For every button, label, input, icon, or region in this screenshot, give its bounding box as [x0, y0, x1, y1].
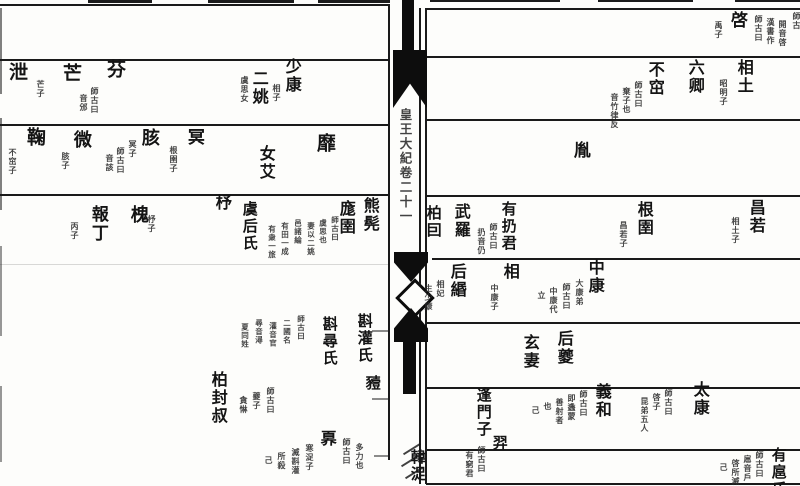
label-mang: 芒 — [60, 63, 80, 84]
label-zhu: 杼 — [213, 194, 230, 212]
right-page-top-border — [426, 8, 800, 10]
label-zhenguan: 斟灌氏 — [356, 313, 372, 364]
note-fen: 師古曰 — [90, 87, 98, 114]
note-ao: 己 — [264, 456, 272, 465]
note-genyu: 昌若子 — [619, 221, 627, 248]
note-buzhu: 師古曰 — [634, 81, 642, 108]
label-yi-zhuo-son: 豷 — [364, 375, 380, 392]
label-hai: 胲 — [139, 128, 158, 148]
note-zhongkang: 立 — [537, 291, 545, 300]
label-houmin: 后緡 — [448, 263, 465, 299]
note-ming: 根圉子 — [169, 146, 177, 173]
label-shaokang: 少康 — [283, 58, 300, 94]
note-houmin: 生少康 — [424, 284, 432, 311]
note-hai: 師古曰 — [116, 147, 124, 174]
scanned-book-spread: 皇王大紀卷二十一 泄 芒子 芒 芬 師古曰 音邠 二姚 虞思女 少康 相子 鞠 … — [0, 0, 800, 486]
label-zhongkang: 中康 — [586, 259, 603, 295]
note-ju: 不窋子 — [8, 148, 16, 175]
label-wei: 微 — [71, 130, 90, 150]
label-nuai: 女艾 — [257, 145, 274, 181]
note-yuhoushi: 虞思也 — [319, 219, 327, 245]
note-bofengshu: 夔子 — [252, 392, 260, 410]
left-page-left-border — [0, 118, 2, 210]
right-page-row-divider — [426, 195, 800, 197]
note-eryao: 虞思女 — [240, 76, 248, 103]
note-ao: 師古曰 — [342, 438, 350, 465]
label-fen: 芬 — [104, 59, 124, 80]
label-xihe: 義和 — [593, 383, 610, 419]
note-buzhu: 音竹律反 — [610, 93, 618, 129]
note-pangmenzi: 也 — [543, 402, 551, 411]
note-yuhoushi: 邑諸綸 — [294, 219, 302, 245]
note-zhongkang: 師古曰 — [562, 283, 570, 310]
note-yourengjun: 扔音仍 — [477, 228, 485, 255]
label-xiongkun: 熊髡 — [361, 197, 378, 233]
note-hai: 音該 — [105, 154, 113, 172]
label-boyin: 柏囙 — [425, 205, 441, 239]
label-ming: 冥 — [184, 128, 202, 147]
note-yuhoushi: 妻以二姚 — [307, 222, 315, 256]
label-ao: 奡 — [318, 430, 335, 448]
label-youhushi: 有扈氏 — [770, 447, 786, 486]
note-yuhoushi: 有田一成 — [281, 222, 289, 256]
left-page-right-border — [388, 4, 390, 460]
right-page-row-divider — [426, 56, 800, 58]
label-xie: 泄 — [6, 62, 26, 83]
label-genyu: 根圉 — [635, 201, 652, 237]
note-xie: 芒子 — [36, 80, 44, 98]
note-yourengjun: 師古曰 — [489, 223, 497, 250]
note-zhen: 師古曰 — [297, 315, 305, 341]
left-page-row-divider — [0, 194, 390, 196]
note-wei: 胲子 — [61, 152, 69, 170]
note-buzhu: 棄子也 — [622, 87, 630, 114]
note-ao: 所殺 — [277, 452, 285, 470]
left-page-faded-divider — [0, 264, 390, 265]
label-pangmenzi: 逢門子 — [475, 387, 491, 438]
label-changruo: 昌若 — [747, 199, 764, 235]
label-liuqing: 六卿 — [686, 59, 703, 95]
fold-volume-title: 皇王大紀卷二十一 — [398, 108, 411, 224]
left-page-row-divider — [0, 124, 390, 126]
label-qi: 啓 — [727, 11, 745, 30]
note-changruo: 相土子 — [731, 217, 739, 244]
label-taikang: 太康 — [691, 381, 708, 417]
note-youhushi: 啓所滅 — [731, 459, 739, 486]
note-huai: 杼子 — [147, 215, 155, 233]
note-baoding: 丙子 — [70, 222, 78, 240]
label-yourengjun: 有扔君 — [500, 201, 516, 252]
left-page-row-divider — [0, 59, 390, 61]
note-youhushi: 扈音戶 — [743, 455, 751, 482]
note-yi-archer: 師古曰 — [477, 446, 485, 473]
note-qi: 師古曰 — [754, 15, 762, 42]
fold-top-black-bar — [402, 0, 414, 52]
scan-edge-mark — [735, 0, 800, 2]
label-buzhu: 不窋 — [646, 61, 663, 97]
label-bofengshu: 柏封叔 — [209, 371, 226, 425]
label-ju: 鞠 — [24, 127, 44, 148]
right-page-row-divider — [426, 322, 800, 324]
label-yin: 胤 — [570, 141, 588, 160]
label-xiangtu: 相土 — [735, 59, 752, 95]
label-zhenxun: 斟尋氏 — [321, 316, 337, 367]
scan-edge-mark — [88, 0, 152, 3]
left-page-left-border — [0, 8, 2, 94]
note-pangmenzi: 師古曰 — [579, 390, 587, 417]
right-page-row-divider — [432, 258, 800, 260]
note-taikang: 啓子 — [652, 393, 660, 411]
note-qi: 禹子 — [714, 21, 722, 39]
scan-edge-mark — [318, 0, 390, 3]
left-page-left-border — [0, 246, 2, 336]
note-zhen: 二國名 — [283, 319, 291, 345]
note-xiangtu: 昭明子 — [719, 79, 727, 106]
note-houmin: 相妃 — [436, 280, 444, 298]
left-page-top-border — [0, 4, 390, 6]
note-ao: 滅斟灌 — [291, 448, 299, 475]
note-taikang: 師古曰 — [664, 389, 672, 416]
note-ao: 多力也 — [355, 443, 363, 470]
fold-fishtail-icon — [393, 50, 427, 108]
label-xuanqi: 玄妻 — [521, 334, 538, 370]
note-qi: 開音啓 — [778, 20, 786, 47]
note-yuhoushi: 有衆一旅 — [268, 225, 276, 259]
note-zhongkang: 中康代 — [549, 287, 557, 314]
note-qi: 漢書作 — [766, 18, 774, 45]
note-taikang: 昆弟五人 — [640, 397, 648, 433]
label-wuluo: 武羅 — [452, 203, 469, 239]
note-pangmenzi: 己 — [531, 406, 539, 415]
note-shaokang: 相子 — [272, 84, 280, 102]
note-hai: 冥子 — [128, 140, 136, 158]
scan-edge-mark — [598, 0, 693, 2]
note-pangmenzi: 善射者 — [555, 398, 563, 425]
label-yuhoushi: 虞后氏 — [241, 201, 257, 252]
note-zhen: 灌音官 — [269, 322, 277, 348]
note-bofengshu: 貪惏 — [239, 396, 247, 414]
note-zhen: 夏同姓 — [241, 323, 249, 349]
note-edge-clipped: 師古 — [792, 12, 800, 30]
fold-fishtail-icon — [394, 308, 428, 342]
fold-fishtail-icon — [394, 252, 428, 282]
note-youhushi: 己 — [719, 463, 727, 472]
right-page-bottom-border — [426, 483, 800, 485]
left-page-left-border — [0, 386, 2, 462]
label-xiang: 相 — [501, 263, 518, 281]
note-yi-archer: 有窮君 — [465, 451, 473, 478]
note-pangmenzi: 即蠭蒙 — [567, 394, 575, 421]
note-youhushi: 師古曰 — [755, 451, 763, 478]
label-yi-archer: 羿 — [491, 435, 507, 452]
note-fen: 音邠 — [79, 94, 87, 112]
scan-edge-mark — [208, 0, 294, 3]
note-ao: 寒浞子 — [305, 444, 313, 471]
note-xiang: 中康子 — [490, 284, 498, 311]
label-huai: 槐 — [128, 205, 147, 225]
note-zhen: 尋音潯 — [255, 319, 263, 345]
label-mangyu: 庬圉 — [337, 200, 354, 236]
note-bofengshu: 師古曰 — [266, 387, 274, 414]
scan-edge-mark — [430, 0, 560, 2]
note-zhongkang: 大康弟 — [575, 279, 583, 306]
label-eryao: 二姚 — [250, 70, 267, 106]
label-baoding: 報丁 — [88, 205, 106, 243]
label-houkui: 后夔 — [555, 330, 572, 366]
label-mi: 靡 — [314, 133, 334, 154]
fold-bottom-black-bar — [403, 340, 416, 394]
label-hanzhuo: 韓浞 — [409, 449, 425, 483]
